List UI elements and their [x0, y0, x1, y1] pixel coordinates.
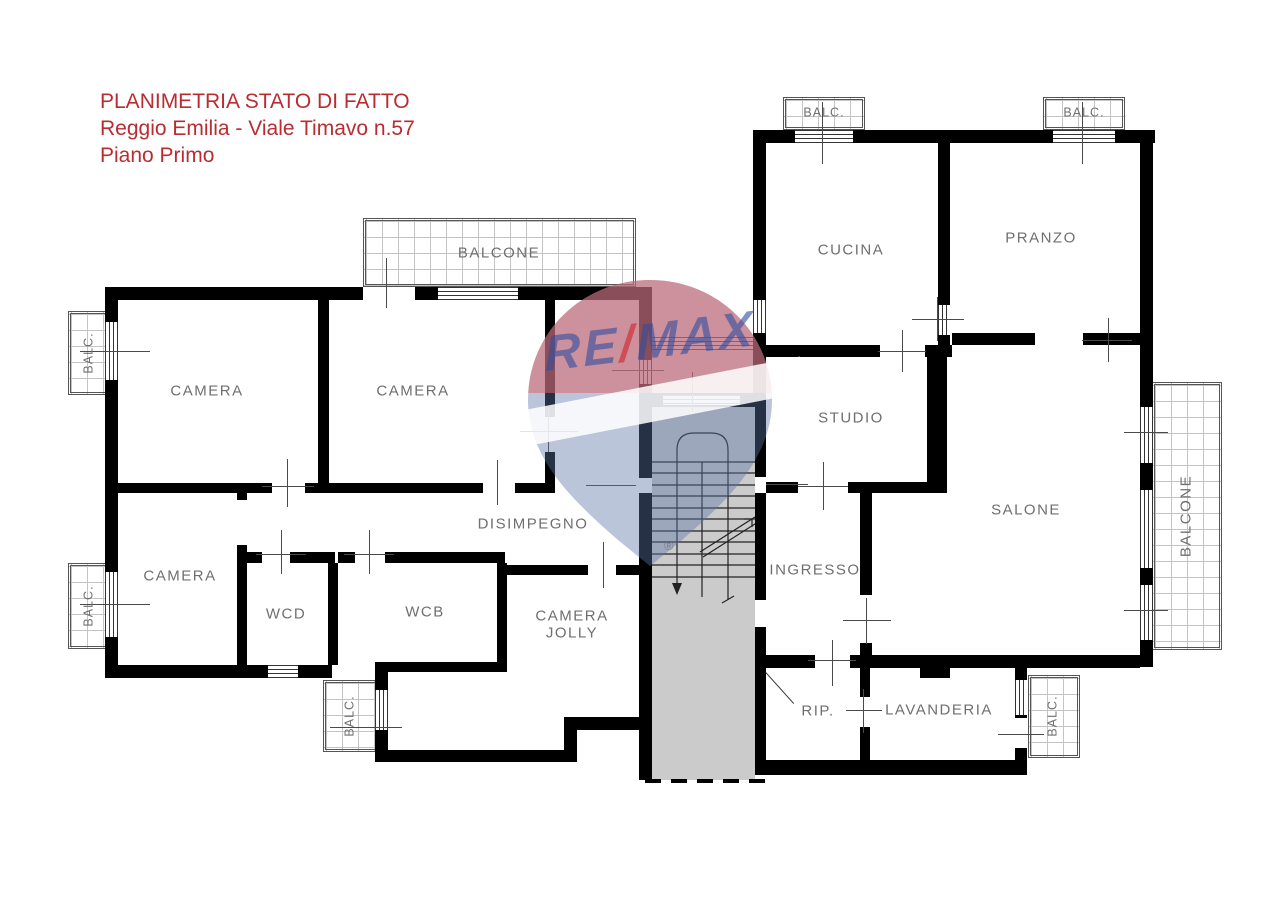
window	[1053, 130, 1115, 143]
tick	[766, 484, 808, 485]
watermark-max: MAX	[635, 300, 756, 371]
balcony-label-top-right-1: BALC.	[803, 105, 844, 122]
room-label-salone: SALONE	[991, 502, 1061, 519]
room-label-rip: RIP.	[801, 703, 834, 720]
room-label-studio: STUDIO	[818, 410, 884, 427]
tick	[1124, 610, 1168, 611]
door-opening	[237, 500, 247, 545]
tick	[863, 689, 864, 733]
room-label-wcd: WCD	[266, 606, 306, 623]
window	[1140, 585, 1153, 640]
wall	[938, 143, 950, 305]
tick	[344, 554, 394, 555]
wall	[920, 668, 950, 678]
window	[938, 305, 950, 335]
tick	[1124, 432, 1168, 433]
room-label-disimpegno: DISIMPEGNO	[478, 516, 589, 533]
tick	[262, 486, 314, 487]
room-label-camera-jolly-1: CAMERA	[535, 608, 608, 625]
watermark-registered-mark: ®	[664, 538, 674, 553]
window	[438, 287, 518, 300]
door-opening	[363, 287, 415, 300]
room-label-camera-2: CAMERA	[376, 383, 449, 400]
door-opening	[272, 483, 305, 493]
plan-title: PLANIMETRIA STATO DI FATTO Reggio Emilia…	[100, 88, 415, 169]
tick	[497, 460, 498, 505]
door-opening	[639, 478, 652, 493]
title-line-3: Piano Primo	[100, 142, 415, 169]
balcony-label-left-lower: BALC.	[81, 585, 98, 626]
balcony-label-left-upper: BALC.	[81, 332, 98, 373]
title-line-1: PLANIMETRIA STATO DI FATTO	[100, 88, 415, 115]
balcony-label-top-right-2: BALC.	[1063, 105, 1104, 122]
tick	[846, 710, 882, 711]
balcony-label-bottom-right: BALC.	[1045, 695, 1062, 736]
tick	[998, 734, 1044, 735]
window	[1140, 407, 1153, 463]
window	[1015, 680, 1027, 715]
balcony-label-bottom-left: BALC.	[342, 695, 359, 736]
window	[1140, 490, 1153, 568]
tick	[692, 372, 693, 412]
wall	[497, 563, 507, 672]
tick	[1082, 340, 1132, 341]
wall	[927, 345, 947, 493]
window	[375, 690, 388, 730]
room-label-pranzo: PRANZO	[1005, 230, 1077, 247]
door-swing-line	[765, 672, 794, 704]
tick	[866, 598, 867, 644]
tick	[256, 554, 306, 555]
window	[663, 395, 740, 405]
wall	[753, 760, 1027, 775]
balcony-label-right: BALCONE	[1178, 475, 1195, 557]
watermark-re: RE	[544, 317, 621, 382]
tick	[937, 297, 938, 341]
window	[268, 665, 298, 678]
room-label-cucina: CUCINA	[818, 242, 885, 259]
room-label-camera-jolly-2: JOLLY	[546, 625, 598, 642]
door-opening	[860, 697, 870, 727]
stair-down-arrow	[672, 583, 682, 595]
room-label-camera-1: CAMERA	[170, 383, 243, 400]
door-opening	[332, 665, 375, 678]
tick	[912, 319, 964, 320]
tick	[548, 408, 549, 452]
tick	[808, 660, 856, 661]
tick	[586, 485, 636, 486]
tick	[281, 530, 282, 574]
door-opening	[545, 417, 555, 452]
tick	[520, 431, 578, 432]
wall	[328, 563, 338, 677]
door-opening	[1035, 333, 1083, 345]
door-opening	[1015, 718, 1027, 748]
tick	[603, 542, 604, 588]
room-label-wcb: WCB	[405, 604, 445, 621]
window	[795, 130, 853, 143]
wall	[318, 300, 329, 483]
tick	[798, 486, 848, 487]
wall	[507, 565, 639, 575]
door-opening	[483, 483, 515, 493]
room-label-camera-3: CAMERA	[143, 568, 216, 585]
wall	[375, 750, 577, 762]
tick	[878, 351, 926, 352]
door-opening	[588, 565, 616, 575]
floor-plan-page: PLANIMETRIA STATO DI FATTO Reggio Emilia…	[0, 0, 1280, 905]
tick	[832, 640, 833, 686]
tick	[287, 459, 288, 507]
title-line-2: Reggio Emilia - Viale Timavo n.57	[100, 115, 415, 142]
wall	[375, 662, 505, 672]
room-label-ingresso: INGRESSO	[769, 562, 860, 579]
watermark-slash: /	[618, 315, 637, 373]
tick	[843, 620, 891, 621]
tick	[386, 258, 387, 308]
room-label-lavanderia: LAVANDERIA	[885, 702, 993, 719]
balcony-label-top: BALCONE	[458, 245, 540, 262]
wall	[639, 407, 652, 780]
tick	[369, 530, 370, 574]
staircase-symbol	[652, 407, 755, 780]
